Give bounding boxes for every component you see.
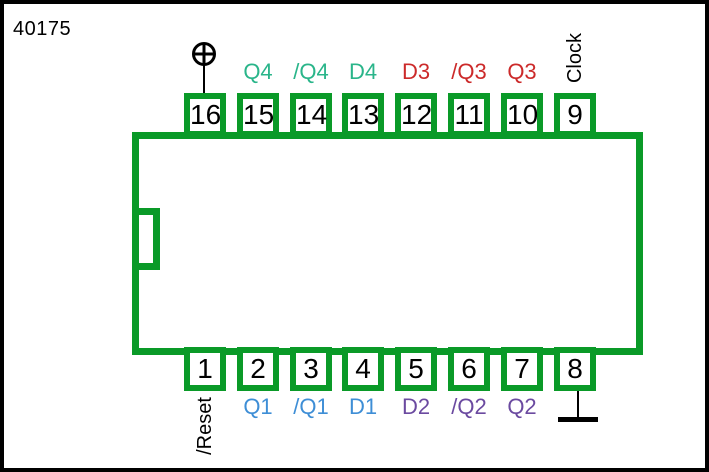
label-nq3: /Q3 xyxy=(439,60,499,84)
chip-pinout-diagram: 40175 16 15 14 13 12 11 10 9 1 2 3 4 5 6… xyxy=(0,0,709,472)
pin-16: 16 xyxy=(184,93,226,137)
power-supply-icon xyxy=(191,41,217,67)
label-clock: Clock xyxy=(563,18,587,98)
pin-12: 12 xyxy=(395,93,437,137)
pin-14: 14 xyxy=(290,93,332,137)
ground-icon xyxy=(558,417,598,422)
pin-15: 15 xyxy=(237,93,279,137)
pin-7: 7 xyxy=(501,347,543,391)
pin-9: 9 xyxy=(554,93,596,137)
label-nq1: /Q1 xyxy=(281,395,341,419)
pin-3: 3 xyxy=(290,347,332,391)
label-nq4: /Q4 xyxy=(281,60,341,84)
label-q4: Q4 xyxy=(228,60,288,84)
pin1-end-notch xyxy=(132,208,160,270)
pin-11: 11 xyxy=(448,93,490,137)
label-reset: /Reset xyxy=(193,381,217,471)
pin-5: 5 xyxy=(395,347,437,391)
label-d3: D3 xyxy=(386,60,446,84)
pin-1: 1 xyxy=(184,347,226,391)
pin-10: 10 xyxy=(501,93,543,137)
power-wire xyxy=(203,65,205,93)
pin-2: 2 xyxy=(237,347,279,391)
label-q2: Q2 xyxy=(492,395,552,419)
label-d1: D1 xyxy=(333,395,393,419)
pin-13: 13 xyxy=(342,93,384,137)
pin-4: 4 xyxy=(342,347,384,391)
label-q1: Q1 xyxy=(228,395,288,419)
pin-8: 8 xyxy=(554,347,596,391)
chip-title: 40175 xyxy=(13,18,71,41)
ic-body xyxy=(132,132,643,355)
pin-6: 6 xyxy=(448,347,490,391)
label-d2: D2 xyxy=(386,395,446,419)
label-d4: D4 xyxy=(333,60,393,84)
label-q3: Q3 xyxy=(492,60,552,84)
ground-wire xyxy=(577,391,579,417)
label-nq2: /Q2 xyxy=(439,395,499,419)
